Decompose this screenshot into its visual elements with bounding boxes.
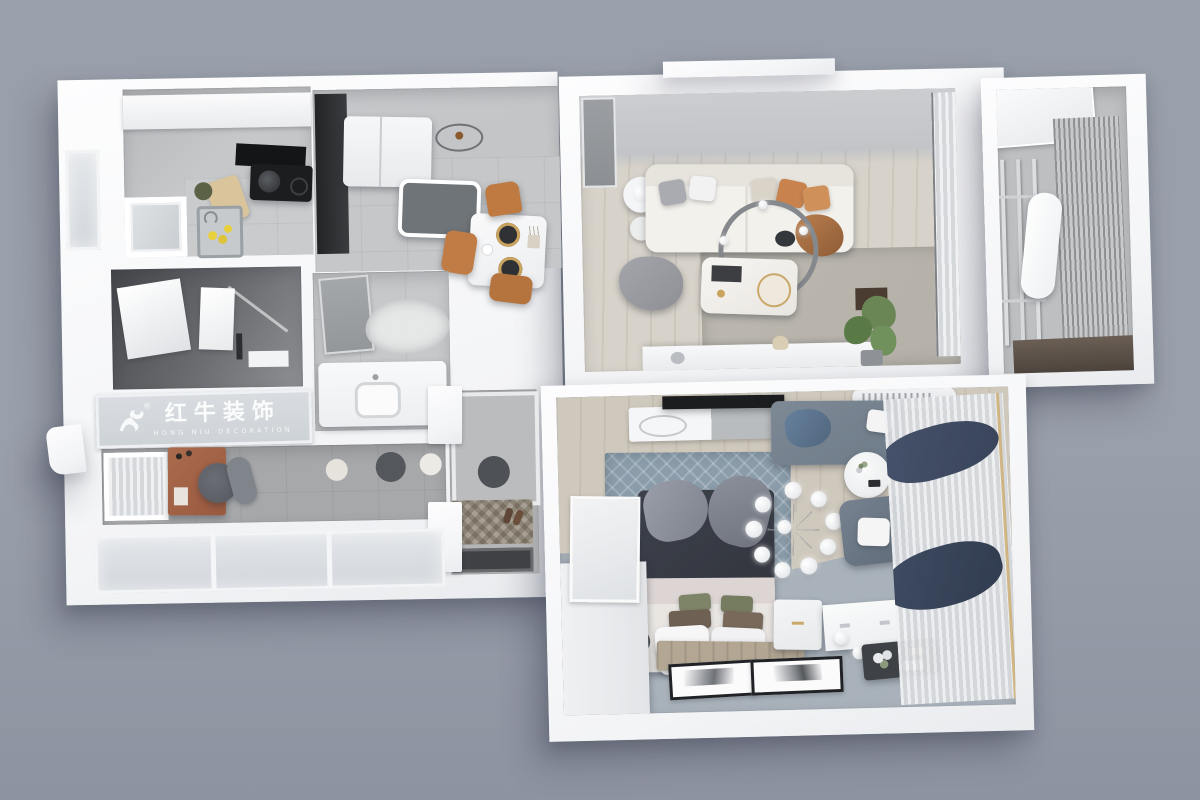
nightstand bbox=[774, 599, 823, 649]
bedroom-dresser bbox=[628, 404, 779, 442]
floor-frame-art bbox=[668, 659, 756, 700]
fridge-door-split bbox=[379, 117, 382, 187]
bathroom-door bbox=[318, 275, 374, 355]
chandelier-bulb bbox=[820, 539, 836, 555]
exterior-hook bbox=[45, 424, 87, 476]
bathroom bbox=[111, 266, 303, 389]
lemon bbox=[208, 231, 217, 240]
study-curtain bbox=[109, 457, 164, 516]
drying-rack bbox=[996, 158, 1061, 350]
hanging-bowl bbox=[775, 230, 795, 246]
floor-mat-round-white bbox=[419, 453, 441, 475]
bull-icon: ® bbox=[115, 406, 146, 437]
bedroom-curtains bbox=[883, 393, 1016, 706]
frame-artwork bbox=[774, 664, 823, 682]
place-setting bbox=[495, 222, 520, 247]
cloud-rug bbox=[365, 299, 450, 354]
floor-mat-round-dark bbox=[375, 452, 406, 483]
chandelier-bulb bbox=[784, 482, 801, 499]
tv bbox=[662, 395, 784, 410]
dining-chair-orange bbox=[484, 180, 523, 217]
console-decor-bowl bbox=[671, 352, 685, 364]
desk-paper bbox=[174, 487, 188, 505]
watermark: ® 红牛装饰 HONG NIU DECORATION bbox=[95, 389, 312, 449]
balcony bbox=[996, 86, 1134, 374]
ring-light-bulb bbox=[719, 236, 728, 245]
ring-light-bulb bbox=[799, 226, 808, 235]
planter-ledge bbox=[1013, 335, 1134, 374]
chandelier-bulb bbox=[745, 521, 762, 538]
floorplan-render: ® 红牛装饰 HONG NIU DECORATION bbox=[0, 0, 1200, 800]
cup-icon bbox=[717, 289, 725, 297]
dining-chair-orange bbox=[440, 229, 478, 275]
pillow-white bbox=[688, 175, 716, 202]
bath-shelf bbox=[248, 351, 288, 368]
chandelier-bulb bbox=[754, 546, 770, 562]
watermark-panel: ® 红牛装饰 HONG NIU DECORATION bbox=[95, 389, 312, 449]
faucet-icon bbox=[372, 374, 378, 380]
living-room bbox=[579, 88, 961, 372]
shoe-cabinet bbox=[428, 386, 462, 444]
brand-name-cn: 红牛装饰 bbox=[165, 400, 282, 425]
panel-handle bbox=[880, 620, 890, 625]
bedroom bbox=[556, 387, 1016, 716]
small-plate bbox=[481, 243, 494, 256]
phone-icon bbox=[868, 480, 880, 487]
fridge bbox=[343, 116, 432, 188]
shower-screen bbox=[199, 287, 235, 350]
study-corridor bbox=[101, 443, 446, 525]
dining-area bbox=[312, 86, 561, 272]
drawer-pull-gold bbox=[792, 622, 804, 625]
flower-bouquet-icon bbox=[870, 648, 898, 672]
bathroom-mirror bbox=[117, 278, 191, 359]
mirror-door-panel bbox=[581, 97, 617, 188]
potted-plant bbox=[835, 295, 906, 368]
basin bbox=[355, 382, 402, 419]
brand-name-en: HONG NIU DECORATION bbox=[154, 425, 293, 437]
pillow-gray bbox=[658, 178, 688, 206]
dining-chair-orange bbox=[488, 272, 533, 305]
chandelier-bulb bbox=[811, 491, 827, 507]
shoe-icon bbox=[512, 509, 524, 526]
pampas-vase-icon bbox=[772, 336, 788, 350]
faucet-icon bbox=[204, 211, 218, 225]
window-pane bbox=[131, 203, 182, 252]
dresser-oval-tray bbox=[639, 414, 688, 437]
burner-icon bbox=[290, 177, 309, 196]
gold-tray bbox=[757, 273, 792, 308]
entry-framed-panel bbox=[450, 391, 540, 507]
denim-throw bbox=[783, 406, 834, 450]
panel-handle bbox=[840, 623, 850, 628]
desk-bottle bbox=[186, 450, 192, 456]
south-window-band bbox=[94, 528, 445, 593]
window-mullion bbox=[210, 533, 216, 591]
window-mullion bbox=[326, 531, 332, 589]
sink bbox=[197, 206, 244, 259]
lemon bbox=[224, 225, 232, 233]
pan-icon bbox=[258, 170, 281, 193]
entry-door-mat bbox=[453, 547, 533, 572]
kitchen-window bbox=[124, 197, 187, 258]
bedroom-door-panel bbox=[569, 496, 640, 603]
lamp-center bbox=[455, 132, 463, 140]
coffee-table-book bbox=[711, 265, 741, 282]
console-table bbox=[398, 179, 482, 240]
entry-hall bbox=[448, 389, 539, 575]
bath-fixture bbox=[236, 333, 242, 359]
entry-patterned-mat bbox=[452, 499, 533, 544]
kitchen-upper-cabinets bbox=[123, 92, 312, 129]
chandelier-bulb bbox=[774, 562, 790, 578]
sphere-chandelier bbox=[744, 481, 842, 579]
vase-sprigs-icon bbox=[527, 226, 540, 249]
plant-pot bbox=[861, 350, 883, 366]
glass-partition-icon bbox=[227, 286, 288, 333]
pillow-orange bbox=[802, 185, 831, 212]
chandelier-bulb bbox=[755, 496, 771, 512]
balcony-roller-blind bbox=[1053, 116, 1130, 355]
kitchen bbox=[123, 86, 314, 257]
cooktop bbox=[250, 164, 313, 202]
kitchen-west-window bbox=[65, 150, 101, 251]
hanging-garment bbox=[1020, 191, 1064, 300]
entry-round-rug bbox=[478, 456, 511, 489]
ceiling-lamp-icon bbox=[435, 123, 483, 152]
plant-foliage bbox=[844, 316, 873, 345]
lemon bbox=[218, 235, 227, 244]
chandelier-arms bbox=[767, 503, 820, 556]
flower-sprig-icon bbox=[852, 458, 870, 474]
study-window bbox=[103, 452, 168, 521]
ring-light-bulb bbox=[758, 200, 767, 209]
desk-bottle bbox=[176, 453, 182, 459]
frame-artwork bbox=[684, 668, 735, 687]
chandelier-bulb bbox=[800, 557, 817, 574]
floor-frame-art bbox=[750, 656, 843, 696]
coffee-table bbox=[700, 257, 798, 316]
pillow-white bbox=[857, 517, 890, 546]
floor-mat-round-white bbox=[326, 459, 348, 481]
registered-mark: ® bbox=[143, 401, 151, 410]
